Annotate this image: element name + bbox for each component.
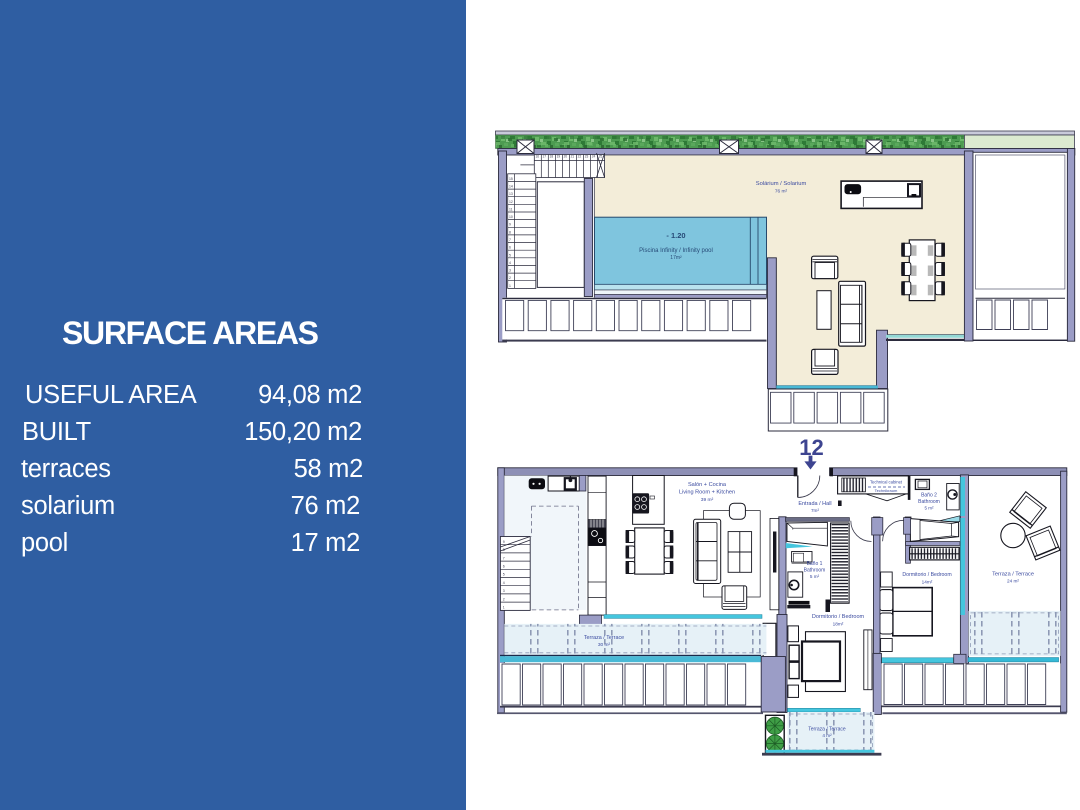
- svg-text:Baño 2: Baño 2: [921, 493, 937, 499]
- svg-text:6: 6: [503, 565, 505, 569]
- svg-text:39 m²: 39 m²: [701, 497, 714, 503]
- svg-text:Technikraum: Technikraum: [875, 488, 898, 493]
- svg-text:8: 8: [509, 230, 511, 234]
- svg-text:Technical cabinet: Technical cabinet: [870, 480, 903, 485]
- svg-text:- 1.20: - 1.20: [666, 231, 685, 240]
- svg-text:5: 5: [509, 253, 511, 257]
- svg-text:Entrada / Hall: Entrada / Hall: [798, 501, 831, 507]
- svg-text:20: 20: [564, 155, 568, 159]
- svg-text:4: 4: [509, 261, 511, 265]
- svg-text:9: 9: [509, 223, 511, 227]
- svg-text:24 m²: 24 m²: [1007, 579, 1019, 584]
- svg-text:18m²: 18m²: [833, 622, 844, 627]
- svg-text:Bathroom: Bathroom: [804, 568, 826, 574]
- svg-text:19: 19: [557, 155, 561, 159]
- svg-text:11: 11: [509, 207, 513, 211]
- svg-text:8: 8: [503, 548, 505, 552]
- svg-text:14m²: 14m²: [922, 580, 933, 585]
- svg-text:17: 17: [543, 155, 547, 159]
- svg-text:7: 7: [509, 238, 511, 242]
- svg-text:13: 13: [509, 192, 513, 196]
- svg-text:14: 14: [509, 185, 513, 189]
- svg-text:5 m²: 5 m²: [925, 506, 935, 511]
- svg-text:3: 3: [509, 269, 511, 273]
- svg-text:6: 6: [509, 246, 511, 250]
- svg-text:Terraza / Terrace: Terraza / Terrace: [584, 635, 624, 641]
- svg-text:4 m²: 4 m²: [822, 733, 832, 738]
- svg-text:Terraza / Terrace: Terraza / Terrace: [992, 572, 1034, 578]
- svg-text:1: 1: [503, 606, 505, 610]
- svg-text:Solárium / Solarium: Solárium / Solarium: [756, 181, 807, 187]
- svg-text:3: 3: [503, 589, 505, 593]
- svg-text:Terraza / Terrace: Terraza / Terrace: [808, 727, 846, 733]
- svg-text:5: 5: [503, 573, 505, 577]
- svg-text:Piscina Infinity / Infinity: Piscina Infinity / Infinity pool: [639, 248, 713, 254]
- svg-text:Dormitorio / Bedroom: Dormitorio / Bedroom: [812, 614, 865, 620]
- svg-text:Salón + Cocina: Salón + Cocina: [688, 482, 727, 488]
- svg-text:1: 1: [509, 284, 511, 288]
- svg-text:2: 2: [503, 597, 505, 601]
- svg-text:25: 25: [599, 155, 603, 159]
- svg-text:Dormitorio / Bedroom: Dormitorio / Bedroom: [902, 572, 951, 578]
- svg-text:2: 2: [509, 276, 511, 280]
- svg-text:Baño 1: Baño 1: [807, 561, 823, 567]
- svg-text:7: 7: [503, 556, 505, 560]
- svg-text:16: 16: [536, 155, 540, 159]
- svg-text:10: 10: [509, 215, 513, 219]
- svg-text:30 m²: 30 m²: [598, 642, 611, 648]
- svg-text:Bathroom: Bathroom: [918, 499, 940, 505]
- svg-text:9: 9: [503, 540, 505, 544]
- svg-text:4: 4: [503, 581, 505, 585]
- svg-text:17m²: 17m²: [670, 255, 682, 261]
- svg-text:5 m²: 5 m²: [810, 574, 820, 579]
- svg-text:18: 18: [550, 155, 554, 159]
- svg-text:76 m²: 76 m²: [775, 189, 788, 195]
- svg-text:21: 21: [571, 155, 575, 159]
- svg-text:12: 12: [509, 200, 513, 204]
- svg-text:15: 15: [509, 177, 513, 181]
- svg-text:24: 24: [592, 155, 596, 159]
- svg-text:23: 23: [585, 155, 589, 159]
- svg-text:22: 22: [578, 155, 582, 159]
- svg-text:Living Room + Kitchen: Living Room + Kitchen: [679, 490, 735, 496]
- svg-text:7m²: 7m²: [811, 508, 820, 513]
